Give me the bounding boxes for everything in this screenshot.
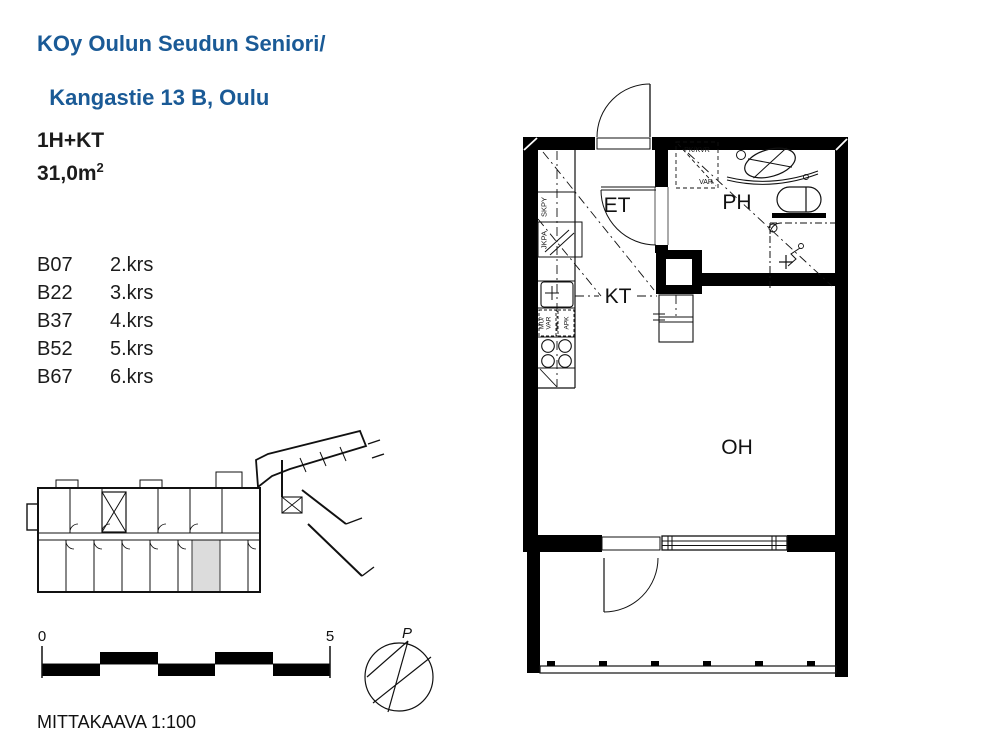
column-core (666, 259, 692, 285)
pk-kvr-label: PK/KVR (684, 147, 710, 154)
angled-wing (256, 431, 384, 576)
room-label-et: ET (604, 194, 631, 217)
window (662, 536, 787, 550)
toilet (772, 187, 826, 218)
plan-sheet: KOy Oulun Seudun Seniori/ Kangastie 13 B… (0, 0, 1000, 750)
highlighted-unit (192, 540, 220, 592)
jkpa-label: JKPA (540, 231, 549, 249)
kitchen-counter (538, 150, 582, 388)
drawing-layer: ET KT PH OH SKPY JKPA MU/ VAR APK PK/KVR… (0, 0, 1000, 750)
stairwell (102, 492, 126, 532)
scale-start-label: 0 (38, 628, 46, 645)
floor-plan: ET KT PH OH SKPY JKPA MU/ VAR APK PK/KVR… (523, 84, 848, 677)
stove (542, 340, 572, 368)
skpy-label: SKPY (540, 197, 549, 217)
balcony-railing (540, 661, 836, 673)
apk-label: APK (564, 316, 571, 330)
room-label-ph: PH (722, 191, 751, 214)
room-label-oh: OH (721, 436, 753, 459)
kt-counter (653, 295, 693, 342)
entrance-door (597, 84, 650, 149)
scale-caption: MITTAKAAVA 1:100 (37, 712, 196, 732)
compass-icon: P (365, 625, 433, 712)
mu-label: MU/ (539, 317, 546, 329)
var-kitchen-label: VAR (546, 316, 553, 329)
var-bathroom-label: VAR (699, 179, 713, 186)
scale-end-label: 5 (326, 628, 334, 645)
compass-north-label: P (402, 625, 412, 642)
balcony-door (602, 537, 660, 612)
scale-bar: 0 5 (38, 628, 334, 678)
room-label-kt: KT (605, 285, 632, 308)
site-plan (27, 431, 384, 592)
fridge-symbol (545, 230, 574, 255)
